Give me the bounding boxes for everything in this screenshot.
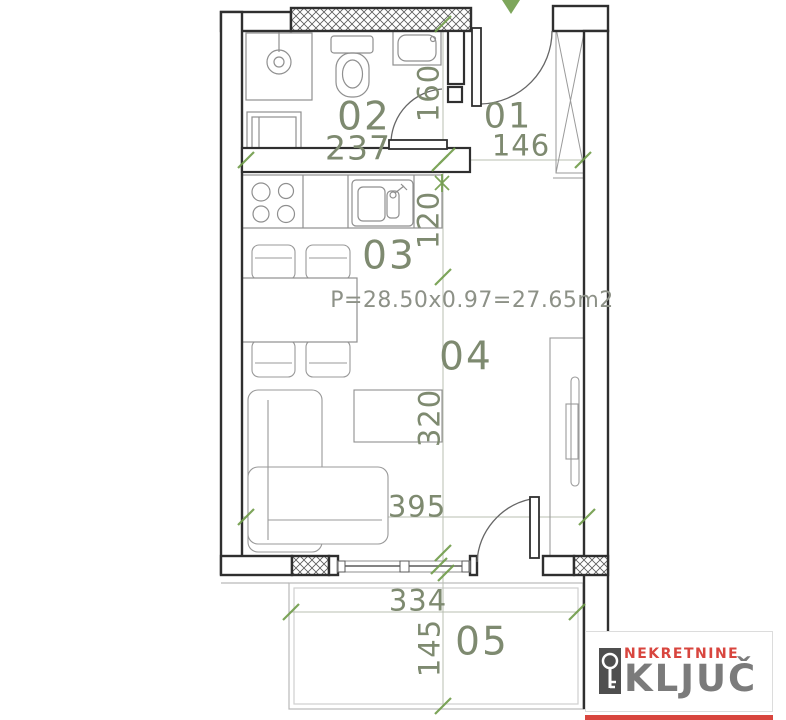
dim-entry-depth: 160: [415, 64, 444, 122]
dim-terrace-depth: 145: [416, 619, 445, 677]
logo-accent-bar: [585, 715, 773, 720]
wardrobe: [553, 28, 585, 178]
sink: [352, 180, 413, 226]
hatched-wall-bottom-left: [292, 556, 329, 575]
dim-kitchen-depth: 120: [415, 191, 444, 249]
hatched-wall-bottom-right: [574, 556, 608, 575]
entrance-door: [472, 28, 552, 106]
dim-living-depth: 320: [416, 389, 445, 447]
tv-unit: [550, 338, 584, 556]
hatched-wall-top: [291, 8, 471, 31]
dim-terrace-width: 334: [389, 587, 447, 616]
washbasin: [393, 30, 441, 65]
north-arrow: [502, 0, 520, 14]
logo-brand: KLJUČ: [624, 657, 757, 700]
balcony-door: [477, 497, 539, 562]
agency-logo: NEKRETNINE KLJUČ: [585, 631, 773, 712]
shower: [246, 31, 312, 100]
room-label-kitchen: 03: [362, 237, 416, 276]
key-icon: [599, 648, 621, 694]
toilet: [331, 36, 373, 97]
room-label-terrace: 05: [455, 623, 509, 662]
room-label-living: 04: [439, 338, 493, 377]
dim-bathroom-width: 237: [325, 132, 391, 165]
dim-living-width: 395: [388, 493, 446, 522]
stove: [252, 183, 295, 223]
dim-entry-width: 146: [492, 132, 550, 161]
area-formula: P=28.50x0.97=27.65m2: [330, 290, 614, 312]
wall-joint-mark: [435, 174, 449, 192]
floor-plan-page: 02 237 01 146 160 03 120 P=28.50x0.97=27…: [0, 0, 786, 720]
